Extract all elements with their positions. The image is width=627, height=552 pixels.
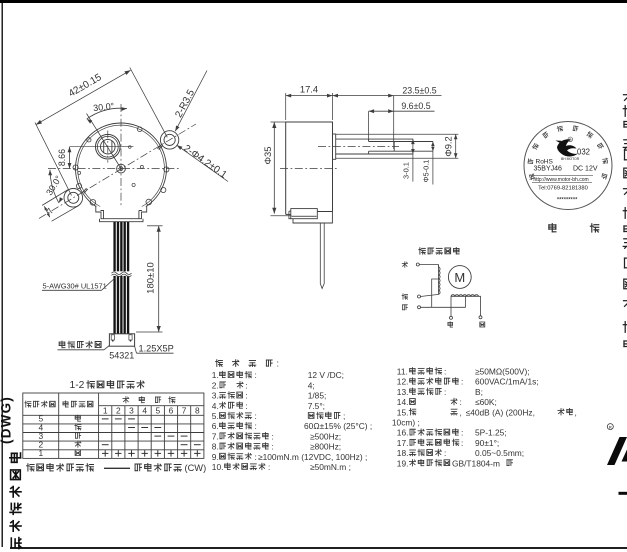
svg-text:RoHS: RoHS (536, 158, 554, 165)
svg-text:8.66: 8.66 (57, 149, 67, 166)
svg-text:23.5±0.5: 23.5±0.5 (402, 85, 436, 95)
svg-text:5-AWG30# UL1571: 5-AWG30# UL1571 (43, 282, 107, 291)
svg-text:1: 1 (38, 448, 43, 458)
svg-text:M: M (454, 270, 465, 285)
svg-text:17.4: 17.4 (300, 83, 318, 94)
svg-text:≥100mN.m (12VDC, 100Hz) ;: ≥100mN.m (12VDC, 100Hz) ; (258, 452, 367, 462)
svg-text:8: 8 (195, 406, 200, 416)
svg-text:4.: 4. (212, 401, 219, 411)
svg-text:*********: ********* (557, 197, 578, 204)
svg-text:http://www.motor-bh.com: http://www.motor-bh.com (533, 177, 588, 183)
svg-text:18.: 18. (397, 448, 409, 458)
svg-text:≤60K;: ≤60K; (475, 397, 497, 407)
svg-text:;: ; (343, 411, 345, 421)
svg-text::: : (272, 431, 274, 441)
svg-text::: : (444, 387, 446, 397)
svg-text::: : (245, 401, 247, 411)
svg-text:2: 2 (116, 406, 121, 416)
svg-text::: : (255, 411, 257, 421)
svg-text:10.: 10. (212, 462, 224, 472)
svg-text:≥50MΩ(500V);: ≥50MΩ(500V); (475, 367, 530, 377)
svg-text::: : (461, 428, 463, 438)
svg-text::: : (272, 442, 274, 452)
svg-text:≥50mN.m ;: ≥50mN.m ; (310, 462, 351, 472)
svg-text:14.: 14. (397, 397, 409, 407)
svg-text::: : (268, 462, 270, 472)
svg-text::: : (461, 377, 463, 387)
svg-text:16.: 16. (397, 428, 409, 438)
svg-text:DC 12V: DC 12V (573, 166, 598, 173)
svg-text:17.: 17. (397, 438, 409, 448)
svg-text:Tel:0769-82181380: Tel:0769-82181380 (538, 185, 588, 191)
svg-text:2.: 2. (212, 380, 219, 390)
svg-text:8.: 8. (212, 442, 219, 452)
svg-text:≤40dB (A) (200Hz,: ≤40dB (A) (200Hz, (466, 407, 535, 417)
svg-text:11.: 11. (397, 367, 408, 377)
svg-text:Φ5-0.1: Φ5-0.1 (422, 160, 431, 183)
svg-text:9.6±0.5: 9.6±0.5 (401, 101, 430, 111)
svg-text:Φ9.2: Φ9.2 (443, 136, 453, 156)
svg-text:,: , (460, 407, 462, 417)
svg-text:54321: 54321 (109, 351, 134, 361)
svg-text:1/85;: 1/85; (308, 391, 327, 401)
svg-text:032: 032 (577, 148, 590, 157)
svg-text:GB/T1804-m: GB/T1804-m (452, 458, 500, 468)
svg-text::: : (245, 391, 247, 401)
svg-text:3: 3 (129, 406, 134, 416)
svg-text:1.25X5P: 1.25X5P (139, 344, 174, 354)
svg-text:0.05~0.5mm;: 0.05~0.5mm; (475, 448, 524, 458)
svg-text::: : (277, 359, 280, 369)
svg-text:(CW): (CW) (185, 463, 207, 473)
svg-text:≥800Hz;: ≥800Hz; (310, 442, 341, 452)
svg-text::: : (461, 438, 463, 448)
svg-text:6.: 6. (212, 421, 219, 431)
svg-text:19.: 19. (397, 458, 409, 468)
svg-text:1: 1 (103, 406, 108, 416)
svg-text:3.: 3. (212, 391, 219, 401)
svg-text:180±10: 180±10 (146, 262, 157, 294)
svg-text::: : (245, 380, 247, 390)
svg-text:600VAC/1mA/1s;: 600VAC/1mA/1s; (475, 377, 539, 387)
svg-text:10cm) ;: 10cm) ; (392, 418, 420, 428)
svg-text:(DWG): (DWG) (0, 396, 14, 444)
svg-text:15.: 15. (397, 407, 409, 417)
svg-text:13.: 13. (397, 387, 409, 397)
svg-text:5P-1.25;: 5P-1.25; (475, 428, 507, 438)
svg-text:4: 4 (142, 406, 147, 416)
svg-text:7.5°;: 7.5°; (308, 401, 325, 411)
svg-text:60Ω±15% (25°C) ;: 60Ω±15% (25°C) ; (304, 421, 372, 431)
svg-text:35BYJ46: 35BYJ46 (534, 166, 563, 173)
svg-text:1.: 1. (212, 370, 219, 380)
svg-text:12.: 12. (397, 377, 409, 387)
svg-text::: : (444, 367, 446, 377)
svg-text:3-0.1: 3-0.1 (402, 162, 411, 179)
svg-text:90±1°;: 90±1°; (475, 438, 499, 448)
svg-text:≥500Hz;: ≥500Hz; (310, 431, 341, 441)
svg-text::: : (255, 452, 257, 462)
svg-text:BH MOTOR: BH MOTOR (561, 157, 580, 161)
svg-text:9.: 9. (212, 452, 219, 462)
svg-text:,: , (575, 407, 577, 417)
svg-text:7.: 7. (212, 431, 219, 441)
svg-text:Φ35: Φ35 (262, 147, 273, 165)
svg-text:R: R (609, 425, 612, 430)
svg-text::: : (444, 448, 446, 458)
svg-text::: : (255, 421, 257, 431)
svg-text:6: 6 (169, 406, 174, 416)
svg-text:B;: B; (475, 387, 483, 397)
svg-text:4;: 4; (308, 380, 315, 390)
svg-text:5: 5 (155, 406, 160, 416)
svg-text::: : (460, 397, 462, 407)
svg-text:7: 7 (182, 406, 187, 416)
svg-text:1-2: 1-2 (70, 380, 85, 391)
svg-text:5.: 5. (212, 411, 219, 421)
svg-text:12 V /DC;: 12 V /DC; (308, 370, 344, 380)
svg-text::: : (255, 370, 257, 380)
